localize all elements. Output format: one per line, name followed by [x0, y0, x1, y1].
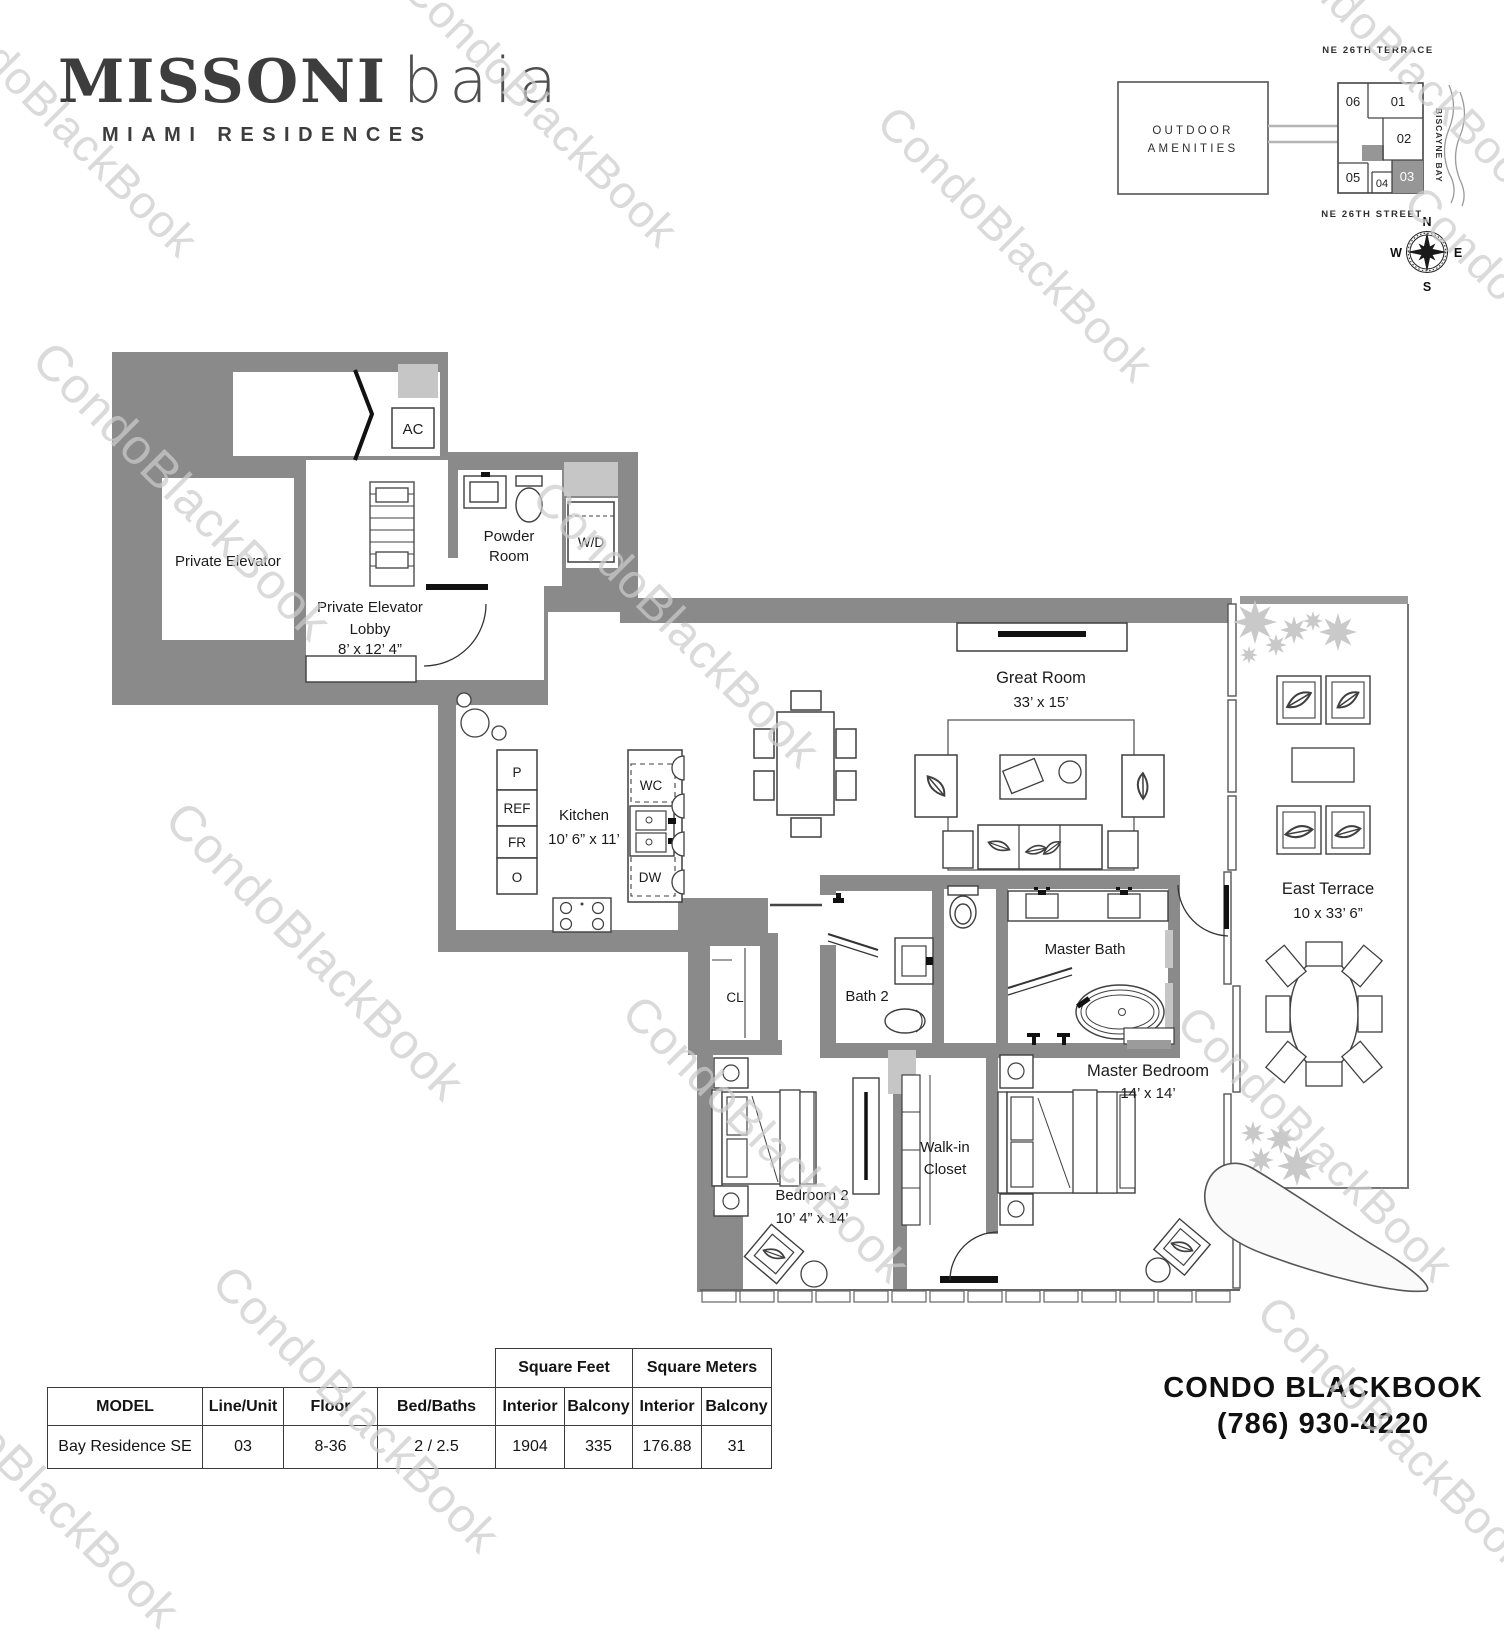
sqft-interior-header: Interior [496, 1388, 565, 1426]
lobby-bench [306, 656, 416, 682]
walk-in-closet-label-1: Walk-in [920, 1139, 969, 1156]
unit-label-01: 01 [1391, 94, 1405, 109]
unit-label-06: 06 [1346, 94, 1360, 109]
east-terrace-dims: 10 x 33’ 6” [1293, 905, 1363, 922]
great-room-label: Great Room [996, 669, 1086, 687]
lobby-dims: 8’ x 12’ 4” [338, 641, 402, 658]
sqm-interior-header: Interior [633, 1388, 702, 1426]
footer-brand: CONDO BLACKBOOK (786) 930-4220 [1140, 1370, 1504, 1443]
bed-baths-header: Bed/Baths [378, 1388, 496, 1426]
wd-label: W/D [578, 535, 604, 550]
unit-label-02: 02 [1397, 131, 1411, 146]
sqft-balcony-header: Balcony [565, 1388, 633, 1426]
unit-03-stub [1362, 145, 1384, 161]
wine-cooler-label: WC [640, 778, 663, 793]
sqft-balcony-value: 335 [565, 1426, 633, 1469]
washer-dryer [568, 502, 614, 562]
bed-baths-value: 2 / 2.5 [378, 1426, 496, 1469]
water-closet-fixtures [948, 886, 978, 928]
master-bath-label: Master Bath [1045, 941, 1126, 958]
square-feet-header: Square Feet [496, 1349, 633, 1388]
bedroom2-label: Bedroom 2 [775, 1187, 848, 1204]
east-terrace-label: East Terrace [1282, 880, 1374, 898]
floor-value: 8-36 [284, 1426, 378, 1469]
building-key-plan: 06 01 02 03 04 05 [1338, 83, 1423, 193]
floor-header: Floor [284, 1388, 378, 1426]
bedroom2-dims: 10’ 4” x 14’ [776, 1210, 849, 1227]
compass-e: E [1454, 246, 1462, 260]
freezer-label: FR [508, 835, 526, 850]
kitchen-label: Kitchen [559, 807, 609, 824]
bay-label: BISCAYNE BAY [1434, 108, 1444, 183]
square-meters-header: Square Meters [633, 1349, 772, 1388]
closet-label: CL [726, 990, 744, 1005]
table-spacer [48, 1349, 496, 1388]
line-unit-value: 03 [203, 1426, 284, 1469]
compass-w: W [1390, 246, 1402, 260]
cooktop [553, 898, 611, 932]
master-bedroom-furniture [998, 1055, 1210, 1282]
master-bedroom-label: Master Bedroom [1087, 1062, 1209, 1080]
sqm-balcony-header: Balcony [702, 1388, 772, 1426]
great-room-dims: 33’ x 15’ [1013, 694, 1068, 711]
compass-n: N [1422, 215, 1431, 229]
model-value: Bay Residence SE [48, 1426, 203, 1469]
spec-table: Square Feet Square Meters MODEL Line/Uni… [47, 1348, 772, 1469]
floorplan-flyer: { "watermark": { "text": "CondoBlackBook… [0, 0, 1504, 1502]
dining-set [754, 691, 856, 837]
compass-rose-icon: N S W E [1390, 215, 1462, 294]
brand-secondary: baia [403, 50, 564, 112]
oven-label: O [512, 870, 523, 885]
amenities-label-2: AMENITIES [1148, 143, 1239, 155]
footer-phone: (786) 930-4220 [1140, 1406, 1504, 1442]
master-bedroom-dims: 14’ x 14’ [1120, 1085, 1175, 1102]
amenities-label-1: OUTDOOR [1152, 125, 1233, 137]
model-header: MODEL [48, 1388, 203, 1426]
dishwasher-label: DW [639, 870, 662, 885]
brand-primary: MISSONI [58, 52, 387, 112]
powder-room-label-2: Room [489, 548, 529, 565]
line-unit-header: Line/Unit [203, 1388, 284, 1426]
lobby-label-1: Private Elevator [317, 599, 423, 616]
pantry-label: P [512, 765, 521, 780]
ac-label: AC [403, 421, 424, 438]
private-elevator-label: Private Elevator [175, 553, 281, 570]
sqm-balcony-value: 31 [702, 1426, 772, 1469]
unit-label-05: 05 [1346, 170, 1360, 185]
table-row: Bay Residence SE 03 8-36 2 / 2.5 1904 33… [48, 1426, 772, 1469]
outdoor-amenities-box [1118, 82, 1268, 194]
bath2-label: Bath 2 [845, 988, 888, 1005]
lobby-label-2: Lobby [350, 621, 391, 638]
site-key-map: NE 26TH TERRACE OUTDOOR AMENITIES 06 01 … [1100, 30, 1504, 320]
street-top-label: NE 26TH TERRACE [1322, 45, 1434, 56]
compass-s: S [1423, 280, 1431, 294]
sqft-interior-value: 1904 [496, 1426, 565, 1469]
lobby-closet [370, 482, 414, 586]
brand-logo: MISSONI baia MIAMI RESIDENCES [58, 50, 564, 147]
kitchen-dims: 10’ 6” x 11’ [548, 831, 620, 848]
footer-brand-name: CONDO BLACKBOOK [1140, 1370, 1504, 1406]
unit-label-04: 04 [1376, 178, 1388, 190]
powder-room-label-1: Powder [484, 528, 535, 545]
unit-label-03: 03 [1400, 169, 1414, 184]
brand-subtitle: MIAMI RESIDENCES [102, 124, 564, 147]
sqm-interior-value: 176.88 [633, 1426, 702, 1469]
fridge-label: REF [504, 801, 531, 816]
street-bottom-label: NE 26TH STREET [1321, 209, 1423, 220]
railing [700, 1290, 1240, 1302]
great-room-furniture [915, 623, 1164, 870]
bay-waves [1445, 85, 1465, 206]
walk-in-closet-label-2: Closet [924, 1161, 967, 1178]
